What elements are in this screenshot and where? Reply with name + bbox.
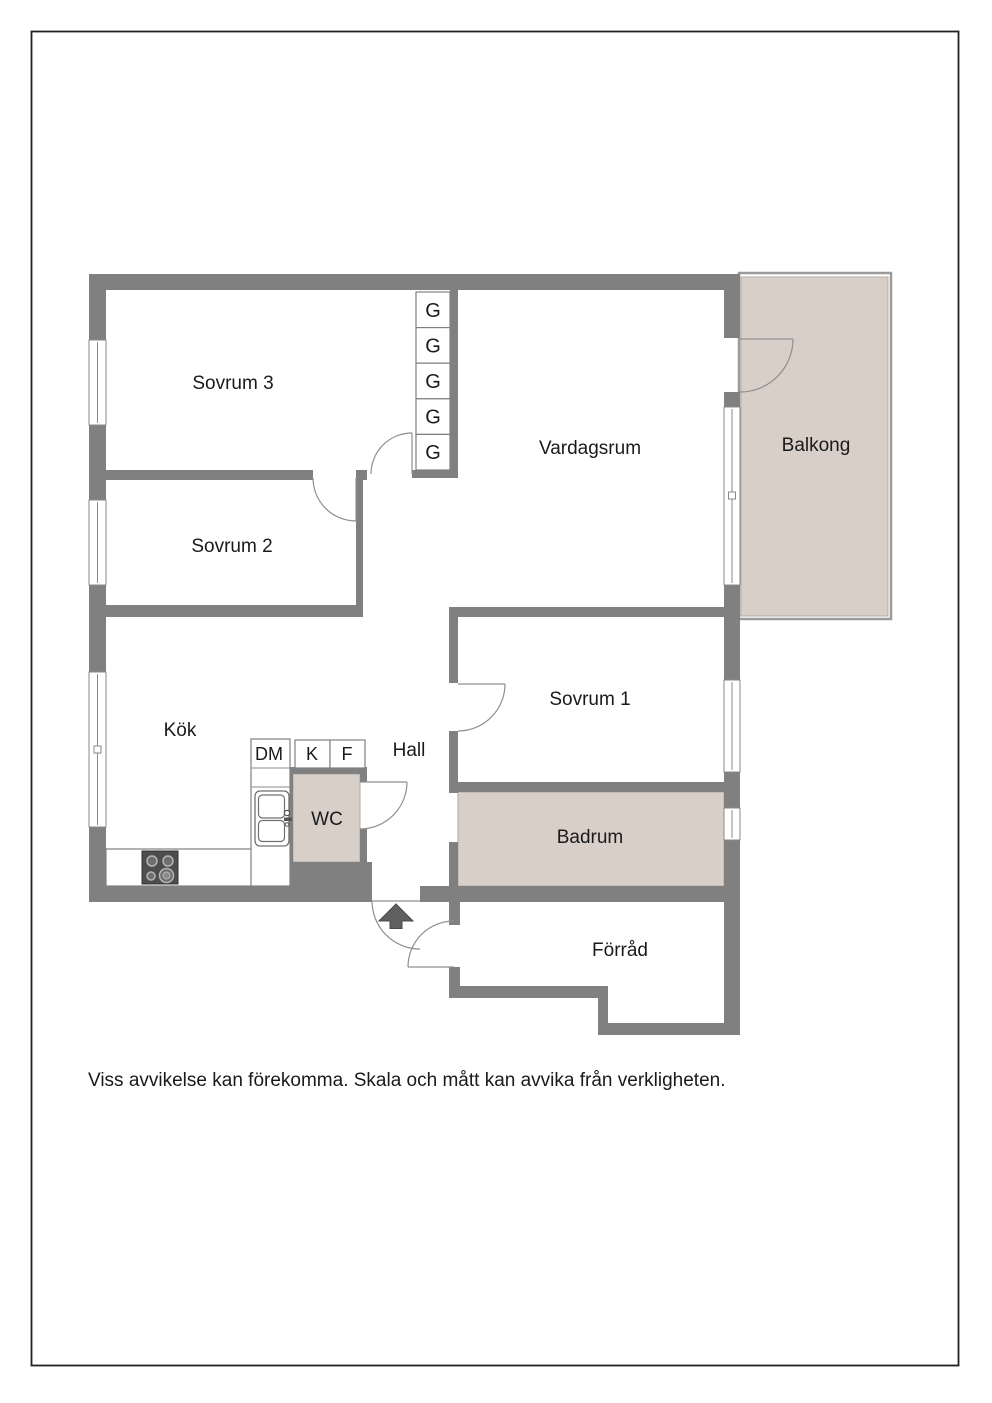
room-label-kok: Kök <box>164 720 197 741</box>
wardrobe-label: G <box>425 300 441 322</box>
floorplan-drawing: G G G G G DM K F <box>0 0 992 1403</box>
page-border <box>32 32 959 1366</box>
wardrobe-label: G <box>425 407 441 429</box>
window-latch <box>729 492 736 499</box>
fridge-label: K <box>306 744 318 764</box>
door-swing <box>360 782 407 829</box>
room-label-vardagsrum: Vardagsrum <box>539 438 641 459</box>
entrance-arrow-icon <box>379 904 413 929</box>
room-label-wc: WC <box>311 809 343 830</box>
sink-icon <box>255 791 292 846</box>
room-label-sovrum1: Sovrum 1 <box>549 689 630 710</box>
floorplan-page: G G G G G DM K F <box>0 0 992 1403</box>
walls <box>89 274 740 1035</box>
room-label-balkong: Balkong <box>782 435 851 456</box>
room-label-hall: Hall <box>393 740 426 761</box>
wardrobe-label: G <box>425 371 441 393</box>
room-fills <box>293 277 888 886</box>
windows <box>89 340 740 840</box>
wardrobe-cabinets: G G G G G <box>416 292 450 470</box>
stove-icon <box>142 851 178 884</box>
door-swing <box>371 433 412 474</box>
disclaimer-text: Viss avvikelse kan förekomma. Skala och … <box>88 1070 726 1091</box>
room-label-sovrum3: Sovrum 3 <box>192 373 273 394</box>
door-swing <box>408 921 454 967</box>
wardrobe-label: G <box>425 442 441 464</box>
wardrobe-label: G <box>425 336 441 358</box>
dishwasher-label: DM <box>255 744 283 764</box>
room-label-forrad: Förråd <box>592 940 648 961</box>
room-label-sovrum2: Sovrum 2 <box>191 536 272 557</box>
room-label-badrum: Badrum <box>557 827 624 848</box>
window-latch <box>94 746 101 753</box>
door-swing <box>458 684 505 731</box>
freezer-label: F <box>342 744 353 764</box>
door-swing <box>313 478 356 521</box>
